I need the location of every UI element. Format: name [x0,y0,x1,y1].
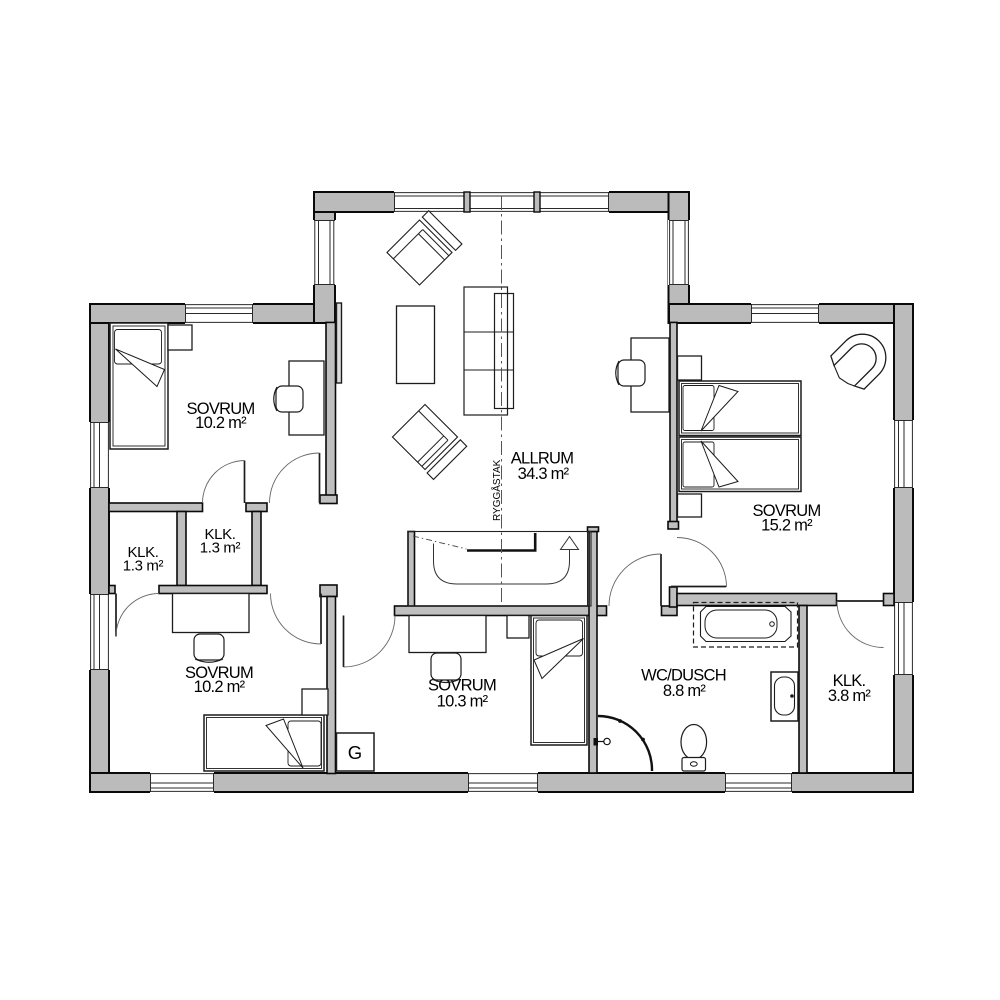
svg-text:10.2 m²: 10.2 m² [194,678,246,696]
svg-text:15.2 m²: 15.2 m² [761,517,813,535]
svg-text:3.8 m²: 3.8 m² [828,687,872,705]
svg-text:G: G [348,742,362,763]
svg-text:34.3 m²: 34.3 m² [518,465,570,483]
svg-text:10.2 m²: 10.2 m² [195,414,247,432]
svg-text:1.3 m²: 1.3 m² [123,558,164,575]
svg-text:8.8 m²: 8.8 m² [663,682,707,700]
svg-text:10.3 m²: 10.3 m² [437,693,489,711]
svg-text:1.3 m²: 1.3 m² [200,540,241,557]
